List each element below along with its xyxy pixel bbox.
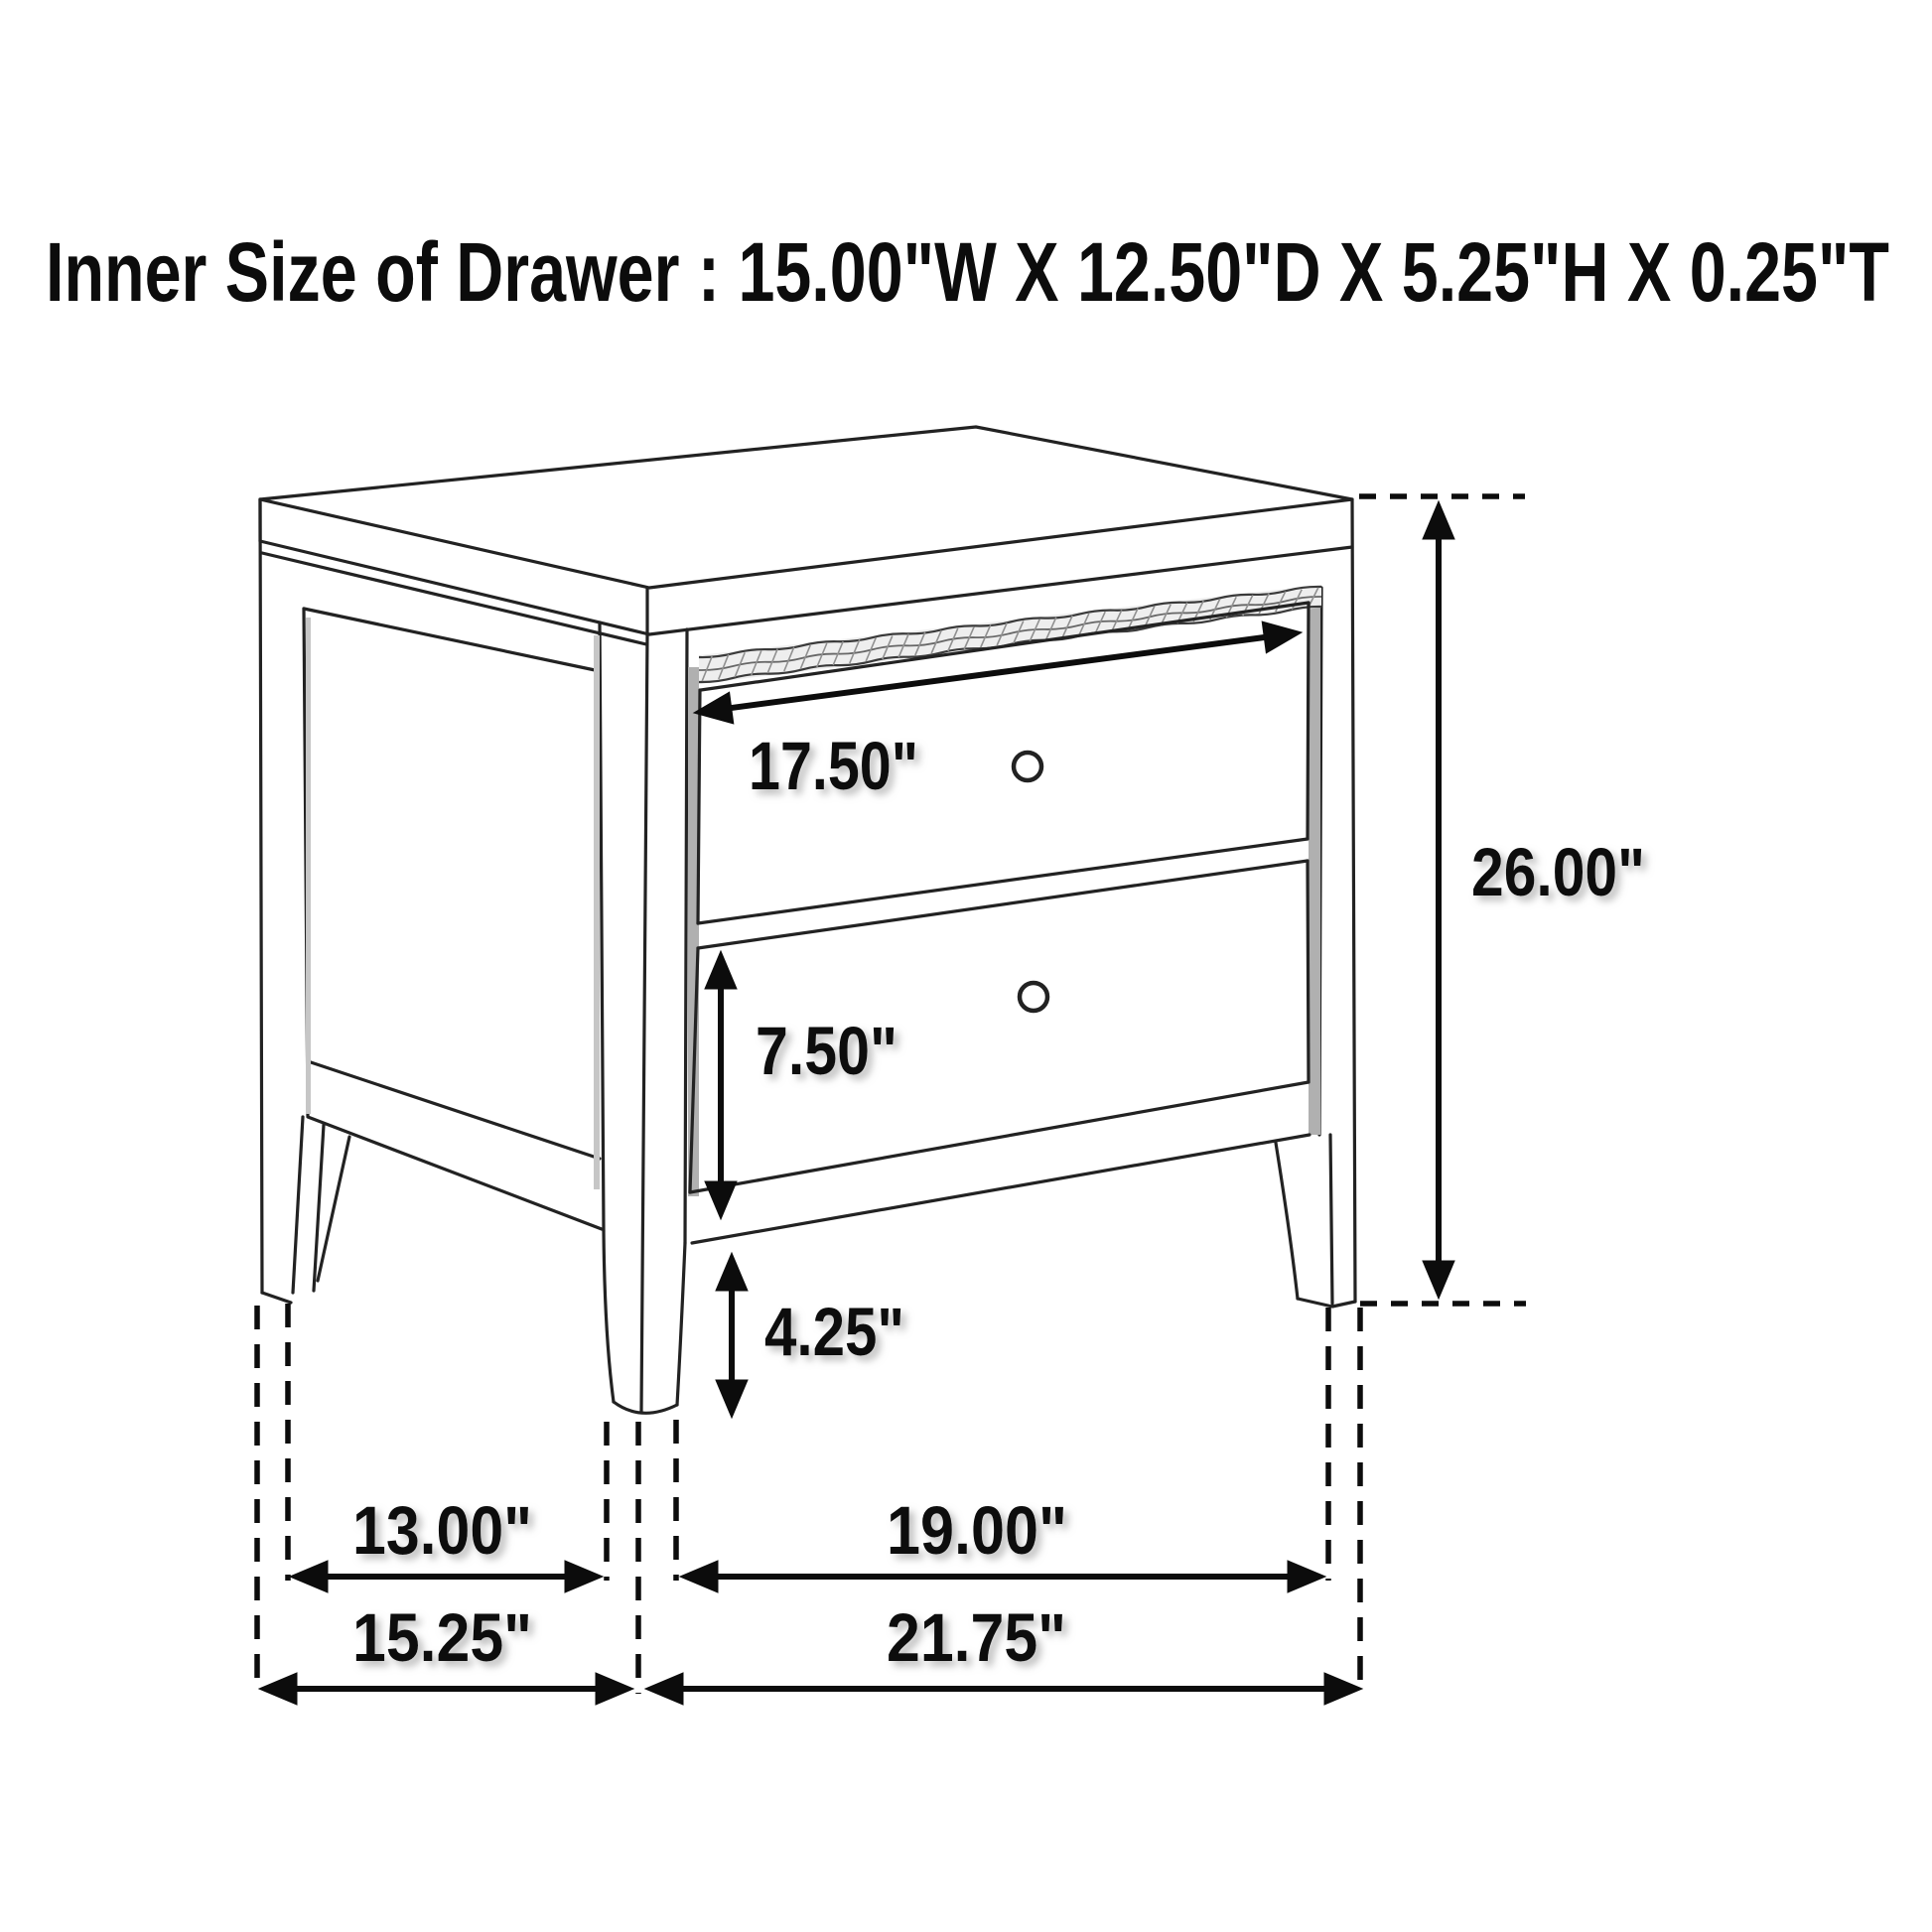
svg-text:7.50": 7.50" xyxy=(756,1013,897,1089)
svg-text:19.00": 19.00" xyxy=(887,1492,1067,1569)
svg-text:15.25": 15.25" xyxy=(352,1599,532,1676)
svg-text:13.00": 13.00" xyxy=(352,1492,532,1569)
svg-text:Inner Size of Drawer : 15.00"W: Inner Size of Drawer : 15.00"W X 12.50"D… xyxy=(46,225,1889,319)
svg-text:21.75": 21.75" xyxy=(887,1599,1066,1676)
svg-text:4.25": 4.25" xyxy=(764,1294,904,1370)
svg-text:17.50": 17.50" xyxy=(749,728,918,804)
svg-text:26.00": 26.00" xyxy=(1471,834,1645,910)
